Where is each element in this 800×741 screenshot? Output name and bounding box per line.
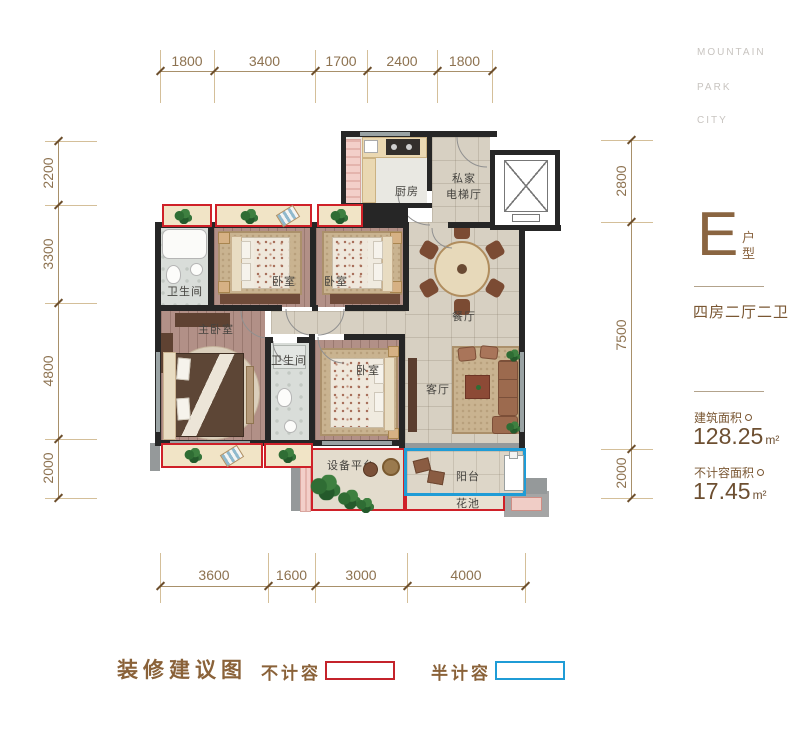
window [322,441,392,445]
wall [344,334,405,340]
room-label-hall-line1: 私家 [452,170,476,186]
plant-icon [506,350,520,362]
elevator-car-icon [504,160,548,212]
elevator-sill-icon [512,214,540,222]
room-label-flower: 花池 [456,495,480,511]
floorplan-page: { "brand": {"lines": ["MOUNTAIN", "PARK"… [0,0,800,741]
plant-icon [506,422,520,434]
room-label-dining: 餐厅 [452,308,476,324]
wall [427,131,432,191]
drain-icon [509,451,518,459]
room-label-living: 客厅 [426,381,450,397]
wall-stub [525,478,547,494]
wall [363,205,408,224]
plant-icon [184,448,202,463]
wall [208,227,214,305]
room-label-balcony: 阳台 [456,468,480,484]
room-label-kitchen: 厨房 [395,183,419,199]
window [360,132,410,136]
plant-icon [278,448,296,463]
plant-icon [174,209,192,224]
wall [399,334,405,448]
wall [448,222,495,228]
plant-icon [330,209,348,224]
planter-icon [382,458,400,476]
room-label-bath2: 卫生间 [271,352,307,368]
room-label-bed4: 卧室 [356,362,380,378]
room-label-master: 主卧室 [198,321,234,337]
wall [310,222,316,307]
planter-icon [363,462,378,477]
window [156,352,160,432]
room-label-bed2: 卧室 [272,273,296,289]
room-label-bed3: 卧室 [324,273,348,289]
room-label-bath1: 卫生间 [167,283,203,299]
water-heater-icon [504,455,524,491]
wall [403,222,409,311]
window [520,352,524,432]
red-flower-pond-box [405,494,505,511]
wall [341,131,346,210]
balcony-chair-icon [427,470,445,486]
wall [265,337,273,343]
red-flowerbox [161,443,263,468]
plant-icon [356,498,374,513]
plant-icon [310,475,341,501]
wall [309,334,315,443]
room-label-hall-line2: 电梯厅 [446,186,482,202]
wall [155,305,282,311]
wall-stub [150,443,160,471]
plant-icon [240,209,258,224]
wall [345,305,408,311]
